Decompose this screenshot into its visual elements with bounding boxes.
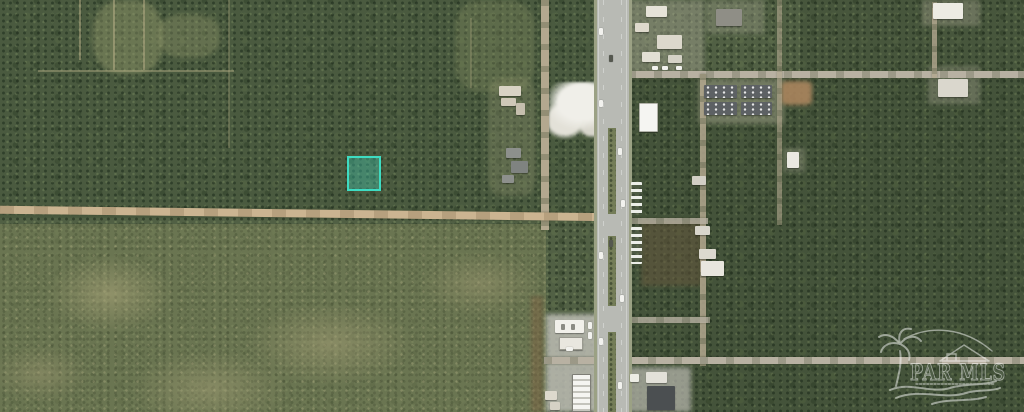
beach-house-icon xyxy=(904,330,992,361)
vehicle xyxy=(566,347,573,351)
fuel-pump xyxy=(561,324,565,330)
building xyxy=(506,148,521,158)
building xyxy=(716,9,742,26)
vehicle xyxy=(618,148,622,155)
building xyxy=(701,261,724,276)
building xyxy=(642,52,660,62)
building xyxy=(646,6,667,17)
road-vertical-east-2 xyxy=(777,0,782,225)
duplex-building xyxy=(704,85,737,98)
trail xyxy=(38,70,234,72)
satellite-map[interactable]: PAR MLS xyxy=(0,0,1024,412)
vehicle xyxy=(599,28,603,35)
vehicle xyxy=(588,332,592,339)
road-horizontal-mid xyxy=(630,218,708,224)
trail xyxy=(79,0,81,60)
building xyxy=(695,226,710,235)
trail xyxy=(143,0,145,70)
road-horizontal-north xyxy=(628,71,1024,78)
watermark: PAR MLS xyxy=(876,324,1022,410)
vehicle xyxy=(620,295,624,302)
building xyxy=(502,175,514,183)
building xyxy=(630,374,639,382)
building xyxy=(501,98,516,106)
duplex-building xyxy=(741,85,772,98)
parcel-highlight xyxy=(347,156,381,191)
highway-median xyxy=(608,332,616,412)
gas-station-canopy xyxy=(555,320,584,333)
vehicle xyxy=(599,100,603,107)
vehicle xyxy=(599,338,603,345)
building xyxy=(787,152,799,168)
building xyxy=(938,79,968,97)
fuel-pump xyxy=(571,324,575,330)
duplex-building xyxy=(741,102,772,115)
forest-area-northeast xyxy=(800,0,1024,74)
scrub-area-southwest xyxy=(0,224,546,412)
road-vertical-west xyxy=(541,0,549,230)
road-stub-east xyxy=(630,317,710,323)
building xyxy=(516,103,525,115)
commercial-building xyxy=(639,103,658,132)
building xyxy=(692,176,706,185)
building xyxy=(635,23,649,32)
building xyxy=(646,372,667,383)
vehicle xyxy=(588,322,592,329)
storage-row xyxy=(631,182,642,215)
trail xyxy=(113,0,115,70)
building xyxy=(511,161,528,173)
vehicle xyxy=(609,240,613,247)
trail xyxy=(470,18,472,88)
building xyxy=(499,86,521,96)
building xyxy=(933,3,963,19)
tree-line xyxy=(531,296,543,412)
clearing xyxy=(93,0,163,74)
building xyxy=(545,391,557,400)
trail xyxy=(228,0,230,148)
storage-row xyxy=(631,227,642,264)
bare-dirt-patch xyxy=(781,81,812,105)
vehicle xyxy=(676,66,682,70)
vehicle xyxy=(599,252,603,259)
building xyxy=(657,35,682,49)
vehicle xyxy=(621,200,625,207)
commercial-building xyxy=(572,374,591,412)
building xyxy=(668,55,682,63)
highway xyxy=(594,0,632,412)
duplex-building xyxy=(704,102,737,115)
vehicle xyxy=(609,55,613,62)
highway-median xyxy=(608,128,616,214)
vehicle xyxy=(618,382,622,389)
bare-dirt-area xyxy=(641,220,703,286)
vehicle xyxy=(652,66,658,70)
building xyxy=(699,249,716,259)
building xyxy=(550,402,560,410)
vehicle xyxy=(662,66,668,70)
lane-marking xyxy=(603,0,604,412)
commercial-building xyxy=(647,386,675,410)
clearing xyxy=(158,14,220,58)
